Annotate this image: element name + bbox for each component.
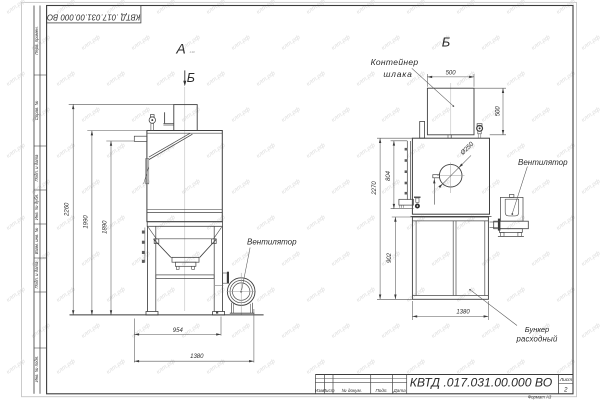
svg-text:расходный: расходный [515, 334, 557, 343]
svg-text:1890: 1890 [103, 220, 109, 234]
svg-text:А: А [175, 41, 185, 57]
svg-text:Вентилятор: Вентилятор [518, 158, 568, 167]
svg-text:КВТД .017.031.00.000 ВО: КВТД .017.031.00.000 ВО [410, 375, 553, 389]
svg-text:1:10: 1:10 [190, 50, 196, 54]
svg-text:1990: 1990 [83, 215, 89, 229]
svg-text:шлака: шлака [383, 69, 412, 79]
svg-text:КВТД .017.031.00.000 ВО: КВТД .017.031.00.000 ВО [47, 13, 140, 22]
svg-text:Дата: Дата [393, 388, 407, 393]
svg-text:Формат А3: Формат А3 [528, 395, 552, 400]
svg-text:Перв. примен.: Перв. примен. [34, 26, 39, 55]
svg-text:2260: 2260 [65, 202, 71, 217]
svg-text:1380: 1380 [190, 354, 204, 360]
svg-text:Вентилятор: Вентилятор [247, 237, 297, 246]
svg-text:Подп. и дата: Подп. и дата [34, 261, 39, 289]
svg-text:Инв. № дубл.: Инв. № дубл. [34, 194, 39, 220]
svg-text:№ докум.: № докум. [342, 388, 362, 393]
svg-text:Подп. и дата: Подп. и дата [34, 154, 39, 182]
svg-text:500: 500 [496, 106, 502, 117]
svg-text:Справ. №: Справ. № [34, 100, 39, 120]
svg-text:954: 954 [173, 328, 184, 334]
svg-text:Б: Б [187, 71, 195, 85]
svg-text:Б: Б [442, 35, 451, 50]
svg-text:500: 500 [446, 70, 457, 76]
svg-text:2: 2 [563, 388, 568, 394]
svg-text:Подп.: Подп. [375, 388, 387, 393]
svg-text:Контейнер: Контейнер [371, 57, 419, 67]
svg-text:Лист: Лист [559, 377, 572, 383]
svg-text:1380: 1380 [456, 309, 470, 315]
svg-text:Бункер: Бункер [525, 325, 549, 334]
svg-text:804: 804 [386, 170, 392, 181]
svg-text:902: 902 [387, 252, 393, 263]
svg-text:Лист: Лист [322, 388, 335, 393]
svg-text:Взам. инв. №: Взам. инв. № [34, 227, 39, 254]
svg-text:2270: 2270 [372, 181, 378, 196]
svg-text:Инв. № подл.: Инв. № подл. [34, 356, 39, 383]
